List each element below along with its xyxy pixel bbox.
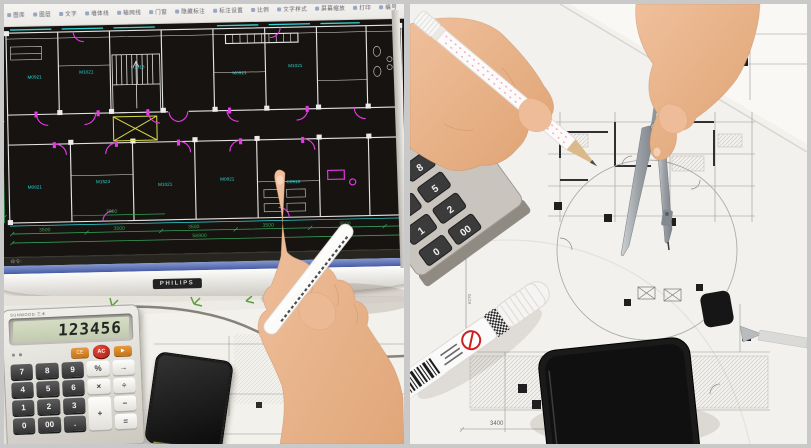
column-markers — [4, 23, 404, 225]
svg-text:7800: 7800 — [106, 209, 118, 215]
key-3: 3 — [63, 397, 86, 413]
key-00: 00 — [38, 417, 61, 433]
left-photo-cad-monitor: 图库 图层 文字 墙体线 轴网线 门窗 隐藏标注 标注设置 比例 文字样式 屏幕… — [4, 4, 404, 444]
key-2: 2 — [37, 399, 60, 415]
key-dot: . — [64, 415, 87, 431]
phone-accessory — [699, 290, 734, 329]
key-minus: − — [113, 395, 136, 411]
drafting-scene: 3400 2000 6270 7 8 — [410, 4, 807, 444]
menu-item: 图库 — [7, 10, 25, 18]
svg-text:3500: 3500 — [113, 226, 125, 232]
svg-text:M0821: M0821 — [28, 184, 43, 189]
menu-item: 轴网线 — [117, 8, 141, 17]
menu-item: 隐藏标注 — [175, 6, 205, 15]
key-6: 6 — [62, 380, 85, 396]
key-percent: % — [87, 360, 110, 376]
key-equals: = — [114, 413, 137, 429]
speaker-dot — [19, 353, 22, 356]
svg-text:M1021: M1021 — [288, 63, 303, 68]
key-arrow: → — [112, 359, 135, 375]
svg-text:M1021: M1021 — [79, 69, 94, 74]
key-multiply: × — [87, 378, 110, 394]
key-5: 5 — [37, 381, 60, 397]
dim-3400: 3400 — [490, 421, 504, 427]
right-photo-drafting-hands: 3400 2000 6270 7 8 — [410, 4, 807, 444]
ce-key: CE — [71, 347, 89, 358]
smartphone — [537, 336, 706, 444]
cad-screen: M0921 M1021 C1515 M0921 M1021 M0821 M152… — [4, 19, 404, 258]
svg-text:3500: 3500 — [339, 221, 351, 227]
key-0: 0 — [13, 418, 36, 434]
speaker-dot — [12, 354, 15, 357]
calculator-lcd-frame: 123456 — [8, 313, 133, 345]
svg-text:3500: 3500 — [188, 224, 200, 230]
svg-text:M0921: M0921 — [27, 74, 42, 79]
calculator: SUNWOOD·三木 123456 CE AC ▶ 7 8 9 % → 4 5 … — [4, 304, 145, 444]
svg-text:M0921: M0921 — [232, 70, 247, 75]
key-plus: + — [88, 396, 112, 430]
svg-text:56900: 56900 — [192, 233, 207, 239]
ac-key: AC — [93, 344, 111, 358]
dimension-lines — [4, 29, 404, 245]
photo-collage: 图库 图层 文字 墙体线 轴网线 门窗 隐藏标注 标注设置 比例 文字样式 屏幕… — [0, 0, 811, 448]
calculator-display: 123456 — [13, 316, 129, 342]
key-4: 4 — [11, 382, 34, 398]
menu-item: 打印 — [353, 4, 371, 11]
svg-text:M1523: M1523 — [96, 179, 111, 184]
svg-text:3500: 3500 — [39, 227, 51, 233]
right-fingernail — [654, 148, 661, 157]
calculator-function-row: CE AC ▶ — [12, 343, 132, 361]
menu-item: 比例 — [251, 5, 269, 13]
key-7: 7 — [10, 364, 33, 380]
cad-floor-plan: M0921 M1021 C1515 M0921 M1021 M0821 M152… — [4, 19, 404, 258]
monitor: 图库 图层 文字 墙体线 轴网线 门窗 隐藏标注 标注设置 比例 文字样式 屏幕… — [4, 4, 404, 301]
backspace-key: ▶ — [114, 345, 132, 356]
monitor-brand-logo: PHILIPS — [153, 278, 202, 289]
hatched-wall — [234, 334, 294, 404]
svg-text:3500: 3500 — [262, 223, 274, 229]
svg-text:C1515: C1515 — [131, 64, 145, 69]
key-1: 1 — [12, 400, 35, 416]
walls — [6, 25, 404, 223]
elevator — [113, 116, 157, 141]
smartphone — [144, 351, 234, 444]
menu-item: 门窗 — [149, 7, 167, 15]
command-prompt: 命令: — [10, 259, 22, 265]
room-tags: M0921 M1021 C1515 M0921 M1021 M0821 M152… — [25, 61, 305, 190]
menu-item: 文字 — [59, 9, 77, 17]
menu-item: 标注设置 — [213, 6, 243, 15]
key-divide: ÷ — [113, 377, 136, 393]
svg-text:M1021: M1021 — [158, 182, 173, 187]
window-band — [6, 22, 404, 226]
svg-text:M0821: M0821 — [220, 176, 235, 181]
key-9: 9 — [61, 362, 84, 378]
key-8: 8 — [36, 363, 59, 379]
menu-item: 文字样式 — [277, 4, 307, 13]
calculator-keypad: 7 8 9 % → 4 5 6 × ÷ 1 2 3 + − 0 00 . = — [10, 359, 137, 433]
stairs — [112, 54, 161, 113]
menu-item: 墙体线 — [85, 8, 109, 17]
svg-text:C0918: C0918 — [286, 179, 300, 184]
dim-v2: 6270 — [467, 293, 472, 304]
doors — [33, 26, 368, 223]
menu-item: 屏幕缩放 — [315, 4, 345, 12]
menu-item: 图层 — [33, 10, 51, 18]
